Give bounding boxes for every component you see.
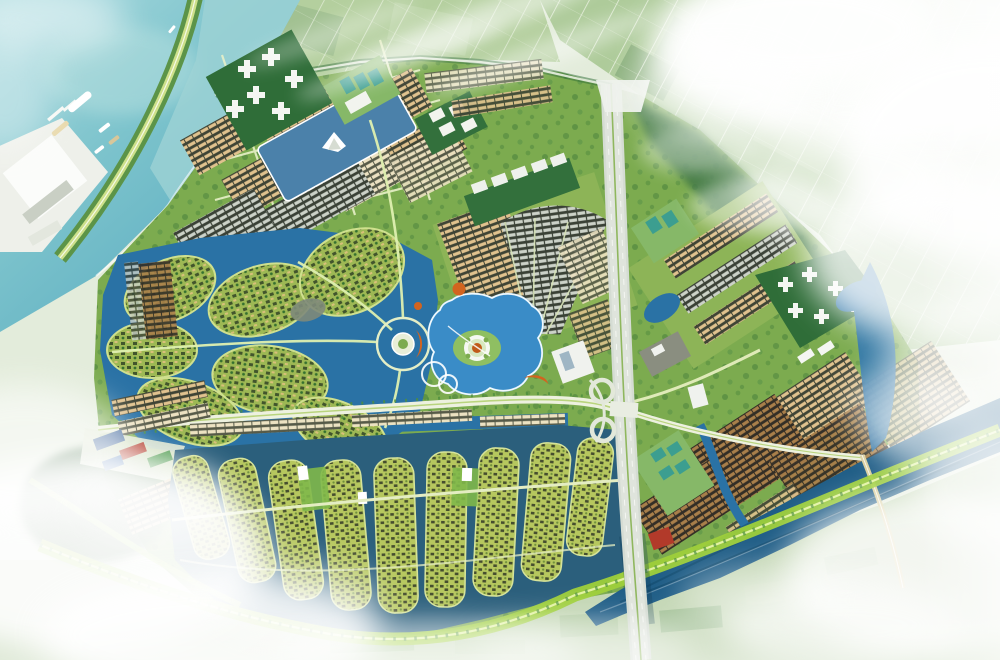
clubhouse [297,465,309,480]
flower-petal [484,338,489,343]
cloud-ne [630,50,810,140]
cloud-wisp [640,126,760,174]
orange-pavilion [453,283,466,296]
masterplan-scene [0,0,1000,660]
cloud-wisp [690,177,830,233]
mist-bottom-edge [0,610,1000,660]
flower-petal [466,354,471,359]
cloud-sw [70,460,230,550]
clubhouse [462,468,472,481]
overpass-deck [609,401,638,418]
orange-dot [414,302,422,310]
villa-finger [472,447,520,597]
mist-right-edge [920,0,1000,660]
roundabout-island [398,339,408,349]
aerial-rendering [0,0,1000,660]
